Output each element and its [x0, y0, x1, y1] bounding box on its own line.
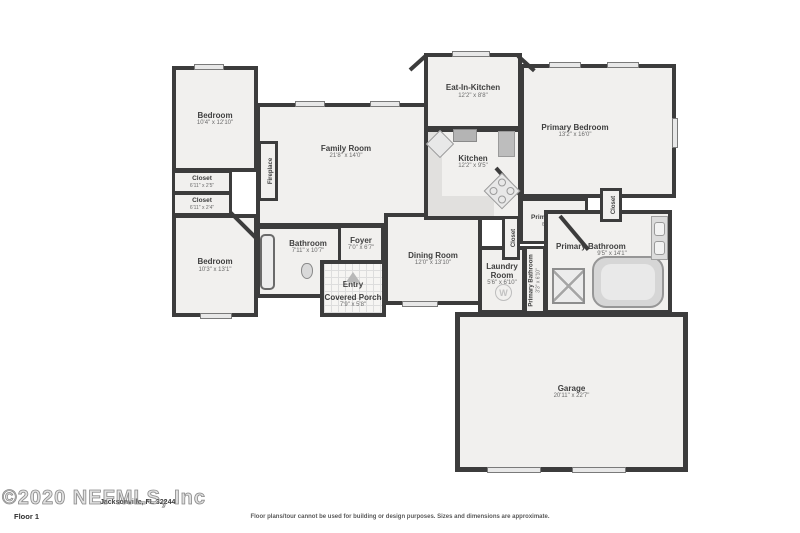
- room-dining-room: Dining Room 12'0" x 13'10": [384, 213, 482, 305]
- window: [672, 118, 678, 148]
- room-covered-porch: Entry Covered Porch 7'9" x 5'8": [320, 260, 386, 317]
- room-label: Covered Porch: [325, 293, 382, 302]
- room-label: Foyer: [350, 236, 372, 245]
- window: [370, 101, 400, 107]
- room-label: Primary Bathroom: [556, 242, 626, 251]
- refrigerator: [453, 129, 477, 142]
- room-dimensions: 7'0" x 6'7": [348, 245, 374, 252]
- room-dimensions: 21'8" x 14'0": [330, 153, 363, 160]
- room-label: Closet: [611, 196, 617, 214]
- room-label: Primary Bathroom: [529, 254, 536, 306]
- window: [607, 62, 639, 68]
- room-family-room: Family Room 21'8" x 14'0": [256, 103, 436, 227]
- room-dimensions: 12'0" x 13'10": [415, 260, 451, 267]
- room-label: Closet: [192, 175, 212, 182]
- disclaimer-text: Floor plans/tour cannot be used for buil…: [0, 514, 800, 520]
- shower: [552, 268, 585, 304]
- window: [402, 301, 438, 307]
- room-closet-a: Closet 6'11" x 2'5": [172, 170, 232, 194]
- room-dimensions: 7'9" x 5'8": [340, 302, 366, 309]
- room-closet-b: Closet 6'11" x 2'4": [172, 192, 232, 216]
- room-label: Laundry Room: [483, 262, 521, 280]
- bathtub: [260, 234, 275, 290]
- room-label: Bedroom: [197, 111, 232, 120]
- kitchen-counter: [498, 131, 515, 157]
- garden-tub: [592, 256, 664, 308]
- entry-arrow-icon: [346, 272, 360, 282]
- washer: W: [495, 284, 512, 301]
- window: [295, 101, 325, 107]
- room-label: Bathroom: [289, 239, 327, 248]
- room-label: Eat-In-Kitchen: [446, 83, 500, 92]
- room-label: Fireplace: [268, 158, 274, 184]
- room-garage: Garage 20'11" x 22'7": [455, 312, 688, 472]
- window: [549, 62, 581, 68]
- room-foyer: Foyer 7'0" x 6'7": [338, 225, 384, 263]
- toilet: [301, 263, 313, 279]
- room-label: Closet: [192, 197, 212, 204]
- mls-watermark: ©2020 NEFMLS, Inc: [2, 487, 206, 510]
- garage-door: [487, 467, 541, 473]
- fireplace: Fireplace: [258, 141, 278, 201]
- garage-door: [572, 467, 626, 473]
- room-dimensions: 10'3" x 13'1": [199, 267, 232, 274]
- room-label: Dining Room: [408, 251, 458, 260]
- room-primary-bedroom: Primary Bedroom 13'2" x 16'0": [520, 64, 676, 198]
- room-dimensions: 10'4" x 12'10": [197, 120, 233, 127]
- room-dimensions: 7'11" x 10'7": [292, 248, 324, 255]
- window: [452, 51, 490, 57]
- room-label: Closet: [511, 229, 517, 247]
- room-dimensions: 12'2" x 8'8": [458, 93, 488, 100]
- room-eat-in-kitchen: Eat-In-Kitchen 12'2" x 8'8": [424, 53, 522, 130]
- room-dimensions: 20'11" x 22'7": [554, 393, 590, 400]
- room-bedroom-1: Bedroom 10'4" x 12'10": [172, 66, 258, 172]
- room-dimensions: 3'3" x 6'10": [535, 254, 541, 306]
- window: [194, 64, 224, 70]
- bathroom-sinks: [651, 216, 668, 260]
- room-hall-closet: Closet: [502, 216, 520, 260]
- room-label: Garage: [558, 384, 586, 393]
- room-label: Family Room: [321, 144, 371, 153]
- room-right-closet: Closet: [600, 188, 622, 222]
- room-dimensions: 6'11" x 2'4": [190, 205, 214, 211]
- room-dimensions: 13'2" x 16'0": [559, 132, 592, 139]
- window: [200, 313, 232, 319]
- floor-plan-page: Bedroom 10'4" x 12'10" Closet 6'11" x 2'…: [0, 0, 800, 533]
- room-label: Bedroom: [197, 257, 232, 266]
- room-label: Primary Bedroom: [541, 123, 608, 132]
- room-dimensions: 12'2" x 9'5": [458, 163, 488, 170]
- kitchen-counter: [428, 196, 494, 216]
- room-dimensions: 6'11" x 2'5": [190, 183, 214, 189]
- room-label: Kitchen: [458, 154, 487, 163]
- room-primary-bathroom-hall: Primary Bathroom 3'3" x 6'10": [524, 246, 546, 314]
